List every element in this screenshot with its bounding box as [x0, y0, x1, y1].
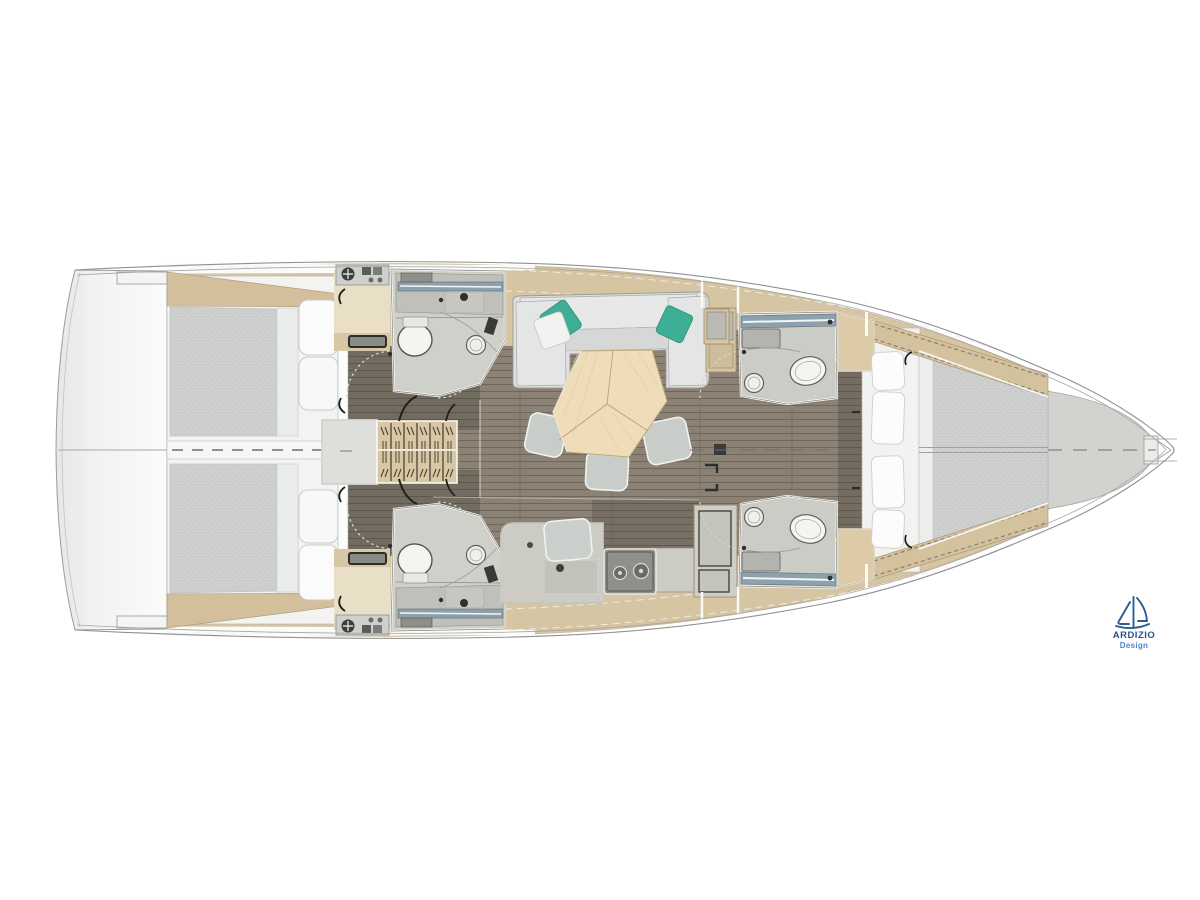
- svg-text:Design: Design: [1120, 641, 1148, 650]
- svg-text:ARDIZIO: ARDIZIO: [1113, 630, 1156, 641]
